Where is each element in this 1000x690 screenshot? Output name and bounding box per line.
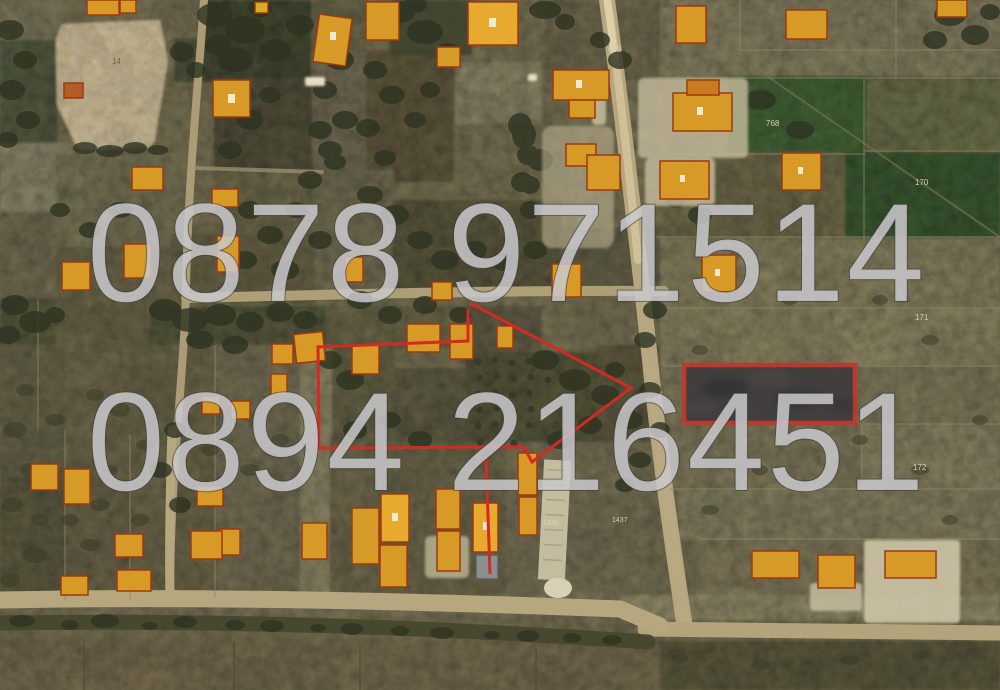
svg-text:0878 971514: 0878 971514	[87, 174, 927, 331]
svg-text:0894 216451: 0894 216451	[87, 363, 927, 520]
